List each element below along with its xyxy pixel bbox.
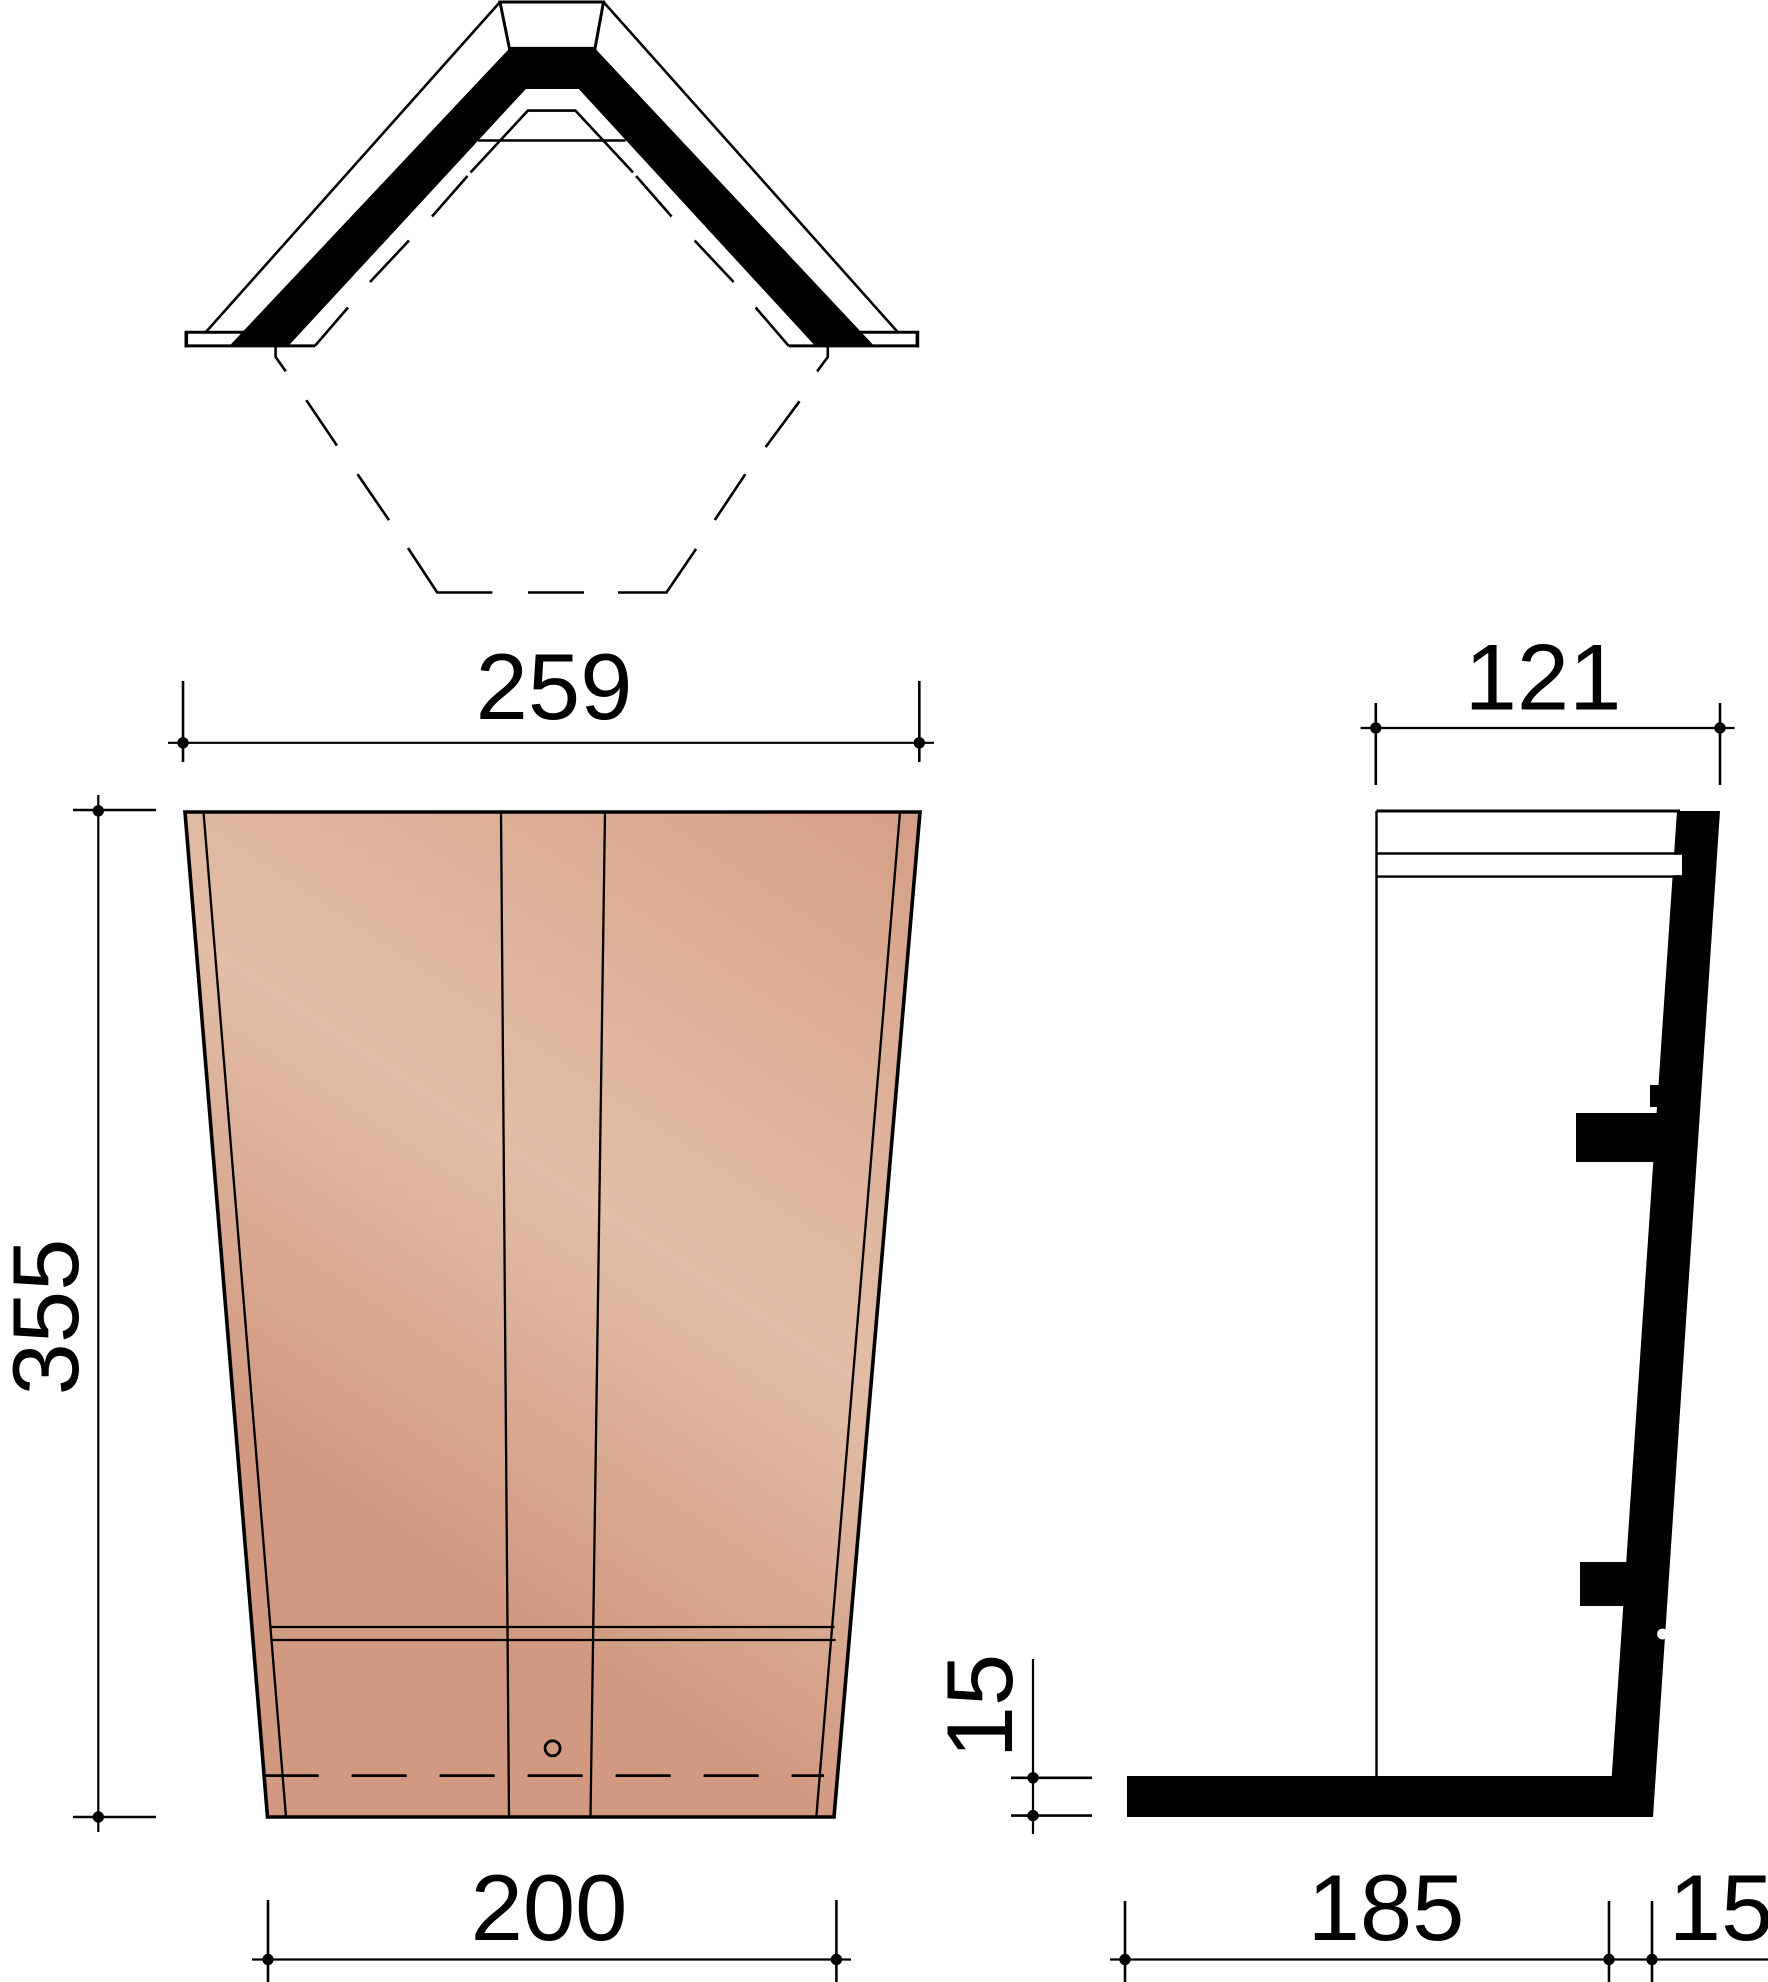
svg-text:121: 121 [1465, 625, 1622, 730]
svg-text:259: 259 [476, 634, 633, 739]
svg-text:200: 200 [471, 1855, 628, 1960]
svg-text:355: 355 [0, 1239, 98, 1396]
svg-text:15: 15 [1669, 1855, 1768, 1960]
svg-text:185: 185 [1308, 1855, 1465, 1960]
svg-text:15: 15 [927, 1654, 1032, 1759]
